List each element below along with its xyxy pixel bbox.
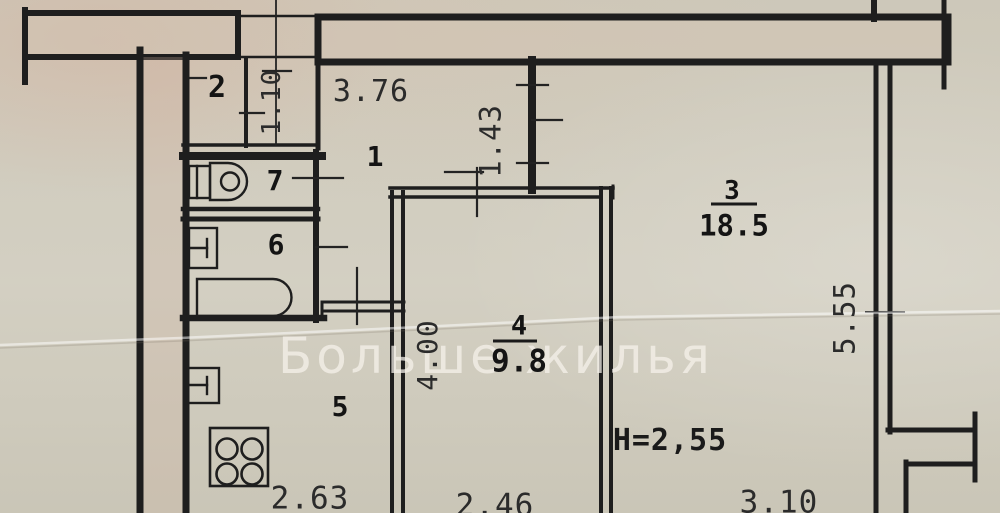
dim-hall-width: 3.76 [333, 77, 409, 107]
closet-walls [183, 58, 318, 148]
kitchen-sink-icon [188, 368, 219, 403]
floor-plan: Больше жилья 2 1 7 6 5 3 18.5 4 9.8 3.76… [0, 0, 1000, 513]
toilet-icon [189, 163, 247, 200]
dim-room4-depth: 4.00 [414, 319, 442, 390]
room-4-underline [493, 340, 537, 343]
floor-plan-drawing [0, 0, 1000, 513]
room-4-area: 9.8 [491, 347, 547, 378]
bathtub-icon [197, 279, 292, 316]
room-3-area: 18.5 [699, 212, 769, 241]
stove-icon [210, 428, 268, 486]
dim-closet-depth: 1.10 [259, 69, 285, 136]
dim-living-opening: 1.43 [477, 104, 506, 178]
room-label-5: 5 [332, 393, 349, 421]
kitchen-room4-divider [392, 192, 403, 513]
room-label-4: 4 [511, 313, 527, 340]
dim-room4-width: 2.46 [456, 491, 535, 513]
room-3-underline [711, 203, 757, 206]
room-label-6: 6 [268, 231, 285, 259]
dim-living-width: 3.10 [740, 488, 819, 513]
dim-ceiling-height: Н=2,55 [613, 426, 727, 456]
room-label-1: 1 [367, 143, 384, 171]
room-label-2: 2 [208, 73, 226, 103]
right-exterior-wall [876, 62, 975, 513]
room-label-3: 3 [724, 178, 740, 204]
left-exterior-wall [140, 50, 186, 513]
dim-kitchen-width: 2.63 [271, 484, 350, 513]
wc-walls [183, 152, 322, 212]
bathroom-sink-icon [189, 228, 217, 268]
dim-living-depth: 5.55 [831, 281, 860, 355]
room-label-7: 7 [267, 167, 284, 195]
